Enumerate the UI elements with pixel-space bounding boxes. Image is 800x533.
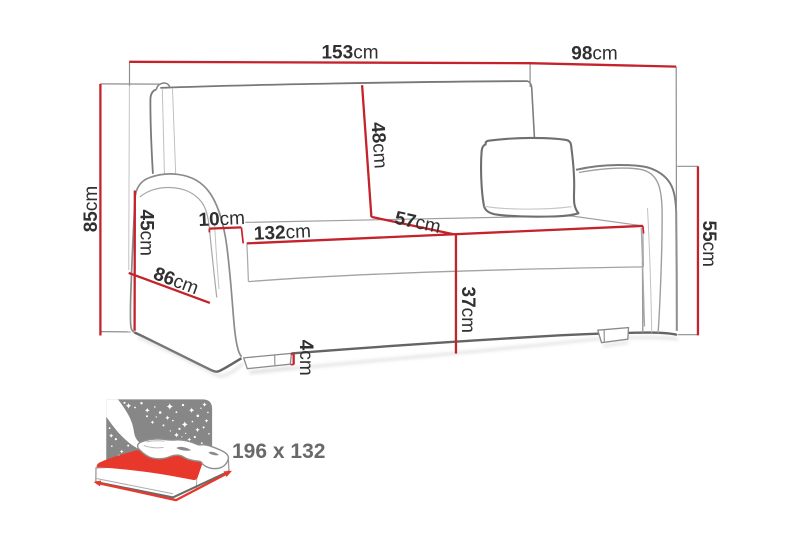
svg-text:4cm: 4cm	[295, 340, 316, 376]
svg-text:45cm: 45cm	[135, 210, 156, 256]
svg-text:153cm: 153cm	[321, 43, 378, 64]
svg-text:57cm: 57cm	[393, 208, 443, 238]
svg-text:10cm: 10cm	[198, 208, 245, 231]
svg-text:85cm: 85cm	[81, 186, 102, 232]
svg-text:132cm: 132cm	[253, 221, 311, 245]
svg-text:55cm: 55cm	[698, 221, 719, 267]
svg-text:86cm: 86cm	[150, 263, 201, 299]
svg-text:196 x 132: 196 x 132	[232, 440, 325, 463]
svg-text:37cm: 37cm	[457, 287, 478, 333]
svg-text:98cm: 98cm	[571, 43, 617, 64]
svg-text:48cm: 48cm	[367, 121, 391, 169]
